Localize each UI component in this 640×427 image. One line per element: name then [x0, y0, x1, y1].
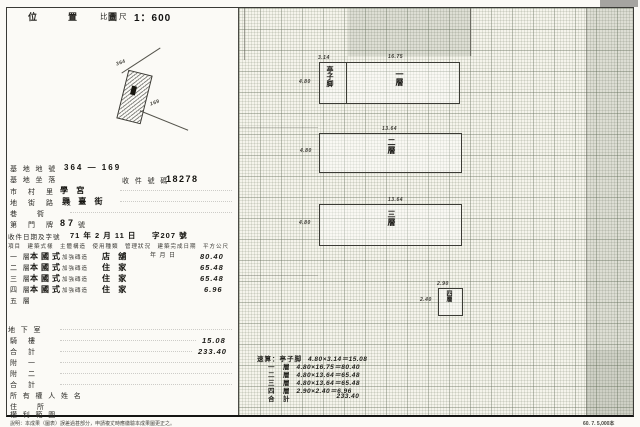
floor-use: 住 家 [102, 273, 129, 284]
floor-3f-plan-label: 三層 [386, 210, 397, 226]
village-label: 市 村 里 [10, 187, 55, 197]
leader-line [120, 182, 232, 191]
site-number-value: 364 — 169 [64, 163, 121, 172]
leader-line [70, 204, 232, 213]
floor-structure: 加強磚造 [62, 253, 88, 261]
dim-label: 13.64 [382, 126, 397, 132]
floor-name: 一 層 [10, 252, 32, 262]
floor-style: 本國式 [30, 284, 63, 295]
leader-line [60, 354, 232, 363]
dim-label: 16.75 [388, 54, 403, 60]
house-number-suffix: 號 [78, 220, 87, 230]
floor-plan-1f [319, 62, 460, 104]
basement-label: 地 下 室 [8, 325, 43, 335]
floor-area: 80.40 [200, 252, 224, 261]
floor-name: 五 層 [10, 296, 32, 306]
site-location-label: 基 地 坐 落 [10, 175, 57, 185]
floor-2f-plan-label: 二層 [386, 138, 397, 154]
floor-style: 本國式 [30, 262, 63, 273]
floor-name: 三 層 [10, 274, 32, 284]
floor-style: 本國式 [30, 251, 63, 262]
dim-label: 13.64 [388, 197, 403, 203]
footnote: 說明：本成果（圖表）誤差過甚部分，申請複丈時應繳驗本成果圖更正之。 [10, 420, 175, 427]
floor-style: 本國式 [30, 273, 63, 284]
calc-label: 合 計 [268, 393, 291, 403]
floor-name: 四 層 [10, 285, 32, 295]
print-run-code: 60. 7. 5,000本 [583, 420, 614, 427]
dim-label: 4.80 [299, 220, 311, 226]
house-number-label: 第 門 牌 [10, 220, 55, 230]
dim-label: 4.80 [299, 79, 311, 85]
leader-line [60, 376, 232, 385]
floor-use: 店 舖 [102, 251, 129, 262]
calc-total-value: 233.40 [337, 393, 360, 403]
owner-name-label: 所 有 權 人 姓 名 [10, 391, 83, 401]
total-2-label: 合 計 [10, 380, 37, 390]
arcade-area-value: 15.08 [202, 336, 226, 345]
date-unit-note: 年 月 日 [150, 250, 176, 259]
rights-scope-label: 權 利 範 圍 [10, 410, 57, 420]
leader-line [60, 365, 232, 374]
floor-4f-plan-label: 四層 [444, 290, 453, 302]
scan-smudge [600, 0, 638, 7]
floors-table-header: 項目 建築式樣 主體構造 使用種類 管理狀況 建築完成日期 平方公尺 [8, 242, 229, 250]
receipt-date-label: 收件日期及字號 [8, 231, 61, 241]
annex-2-label: 附 二 [10, 369, 37, 379]
floor-use: 住 家 [102, 262, 129, 273]
scale-label: 比例尺 [100, 11, 129, 22]
floor-name: 二 層 [10, 263, 32, 273]
receipt-doc-number: 字207 號 [152, 230, 188, 241]
floor-structure: 加強磚造 [62, 264, 88, 272]
receipt-date-value: 71 年 2 月 11 日 [70, 230, 136, 241]
lane-label: 巷 衖 [10, 209, 46, 219]
floor-use: 住 家 [102, 284, 129, 295]
leader-line [60, 332, 196, 341]
dim-label: 2.40 [420, 297, 432, 303]
arcade-plan-label: 亭子脚 [324, 66, 334, 87]
arcade-row-label: 騎 樓 [10, 336, 37, 346]
site-number-label: 基 地 地 號 [10, 164, 57, 174]
village-value: 學 宮 [60, 185, 87, 196]
floor-structure: 加強磚造 [62, 286, 88, 294]
floor-structure: 加強磚造 [62, 275, 88, 283]
floor-area: 65.48 [200, 263, 224, 272]
scanned-building-survey-document: 位 置 圖 比例尺 1：600 364 169 基 地 地 號 364 — 16… [0, 0, 640, 427]
leader-line [60, 343, 192, 352]
floor-area: 65.48 [200, 274, 224, 283]
annex-1-label: 附 一 [10, 358, 37, 368]
floor-1f-plan-label: 一層 [394, 70, 405, 86]
floor-area: 6.96 [204, 285, 223, 294]
leader-line [60, 321, 232, 330]
arcade-divider-line [346, 63, 347, 103]
dim-label: 4.80 [300, 148, 312, 154]
dim-label: 3.14 [318, 55, 330, 61]
total-row-label: 合 計 [10, 347, 37, 357]
scale-value: 1：600 [134, 9, 171, 24]
calc-line: 合 計 233.40 [268, 393, 359, 403]
dim-label: 2.90 [437, 281, 449, 287]
house-number-value: 87 [60, 218, 76, 228]
leader-line [120, 193, 232, 202]
